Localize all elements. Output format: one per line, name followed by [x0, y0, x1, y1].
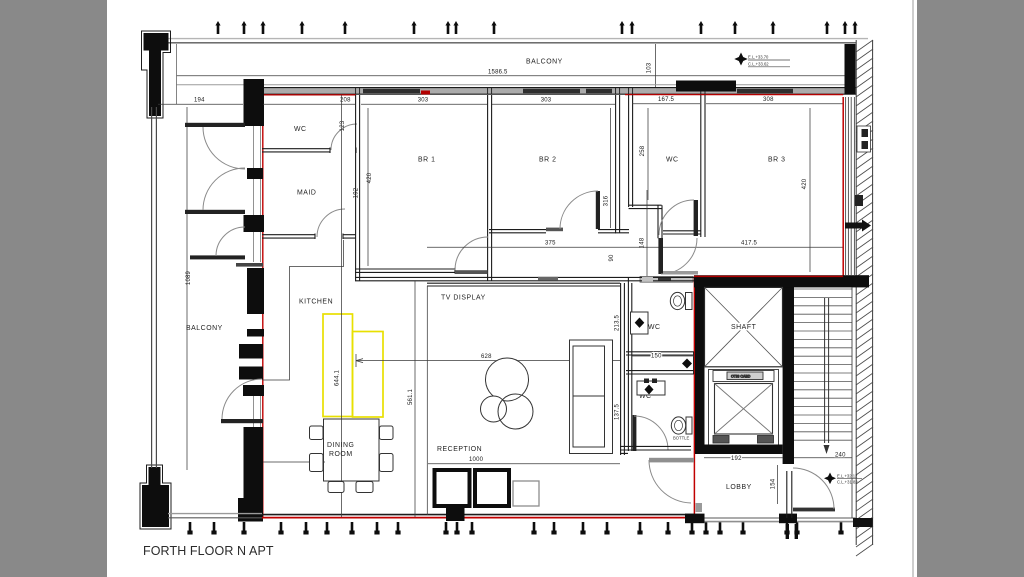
- svg-text:154: 154: [771, 478, 777, 489]
- svg-text:KITCHEN: KITCHEN: [299, 299, 333, 306]
- svg-text:417.5: 417.5: [741, 241, 757, 247]
- svg-text:DINING: DINING: [327, 442, 354, 449]
- svg-text:420: 420: [802, 178, 808, 189]
- svg-text:644.1: 644.1: [335, 370, 341, 386]
- svg-text:LOBBY: LOBBY: [726, 484, 752, 491]
- svg-text:150: 150: [651, 354, 662, 360]
- svg-text:561.1: 561.1: [408, 389, 414, 405]
- svg-text:148: 148: [640, 237, 646, 248]
- svg-text:90: 90: [609, 254, 615, 262]
- svg-text:RECEPTION: RECEPTION: [437, 446, 482, 453]
- svg-text:167.5: 167.5: [658, 97, 674, 103]
- svg-text:240: 240: [835, 453, 846, 459]
- svg-text:303: 303: [541, 98, 552, 104]
- svg-text:192: 192: [354, 187, 360, 198]
- svg-text:WC: WC: [648, 324, 661, 331]
- svg-text:1000: 1000: [469, 457, 484, 463]
- svg-text:1089: 1089: [186, 270, 192, 285]
- svg-text:103: 103: [647, 62, 653, 73]
- svg-text:BR 3: BR 3: [768, 157, 786, 164]
- svg-text:BALCONY: BALCONY: [186, 325, 223, 332]
- svg-text:TV DISPLAY: TV DISPLAY: [441, 295, 486, 302]
- svg-text:137.5: 137.5: [615, 404, 621, 420]
- svg-text:258: 258: [640, 145, 646, 156]
- svg-text:628: 628: [481, 354, 492, 360]
- svg-text:375: 375: [545, 241, 556, 247]
- svg-text:123: 123: [340, 120, 346, 131]
- svg-text:192: 192: [731, 456, 742, 462]
- svg-text:OTIS CABD: OTIS CABD: [731, 375, 751, 379]
- svg-text:BALCONY: BALCONY: [526, 59, 563, 66]
- svg-text:WC: WC: [666, 157, 679, 164]
- svg-text:316: 316: [604, 195, 610, 206]
- svg-text:213.5: 213.5: [615, 315, 621, 331]
- svg-text:FORTH FLOOR N APT: FORTH FLOOR N APT: [143, 544, 274, 558]
- svg-text:420: 420: [367, 172, 373, 183]
- svg-text:E.L.+33.70: E.L.+33.70: [748, 55, 769, 60]
- svg-text:E.L.+32.12: E.L.+32.12: [837, 474, 858, 479]
- svg-text:WC: WC: [294, 126, 307, 133]
- svg-text:MAID: MAID: [297, 190, 316, 197]
- svg-text:SHAFT: SHAFT: [731, 324, 757, 331]
- svg-text:C.L.+33.62: C.L.+33.62: [748, 62, 769, 67]
- svg-text:308: 308: [763, 97, 774, 103]
- svg-text:BOTTLE: BOTTLE: [673, 436, 689, 441]
- svg-text:1586.5: 1586.5: [488, 70, 508, 76]
- svg-text:303: 303: [418, 98, 429, 104]
- svg-text:BR 2: BR 2: [539, 157, 557, 164]
- svg-text:BR 1: BR 1: [418, 157, 436, 164]
- svg-text:ROOM: ROOM: [329, 451, 353, 458]
- svg-text:194: 194: [194, 98, 205, 104]
- svg-text:C.L.+31.82: C.L.+31.82: [837, 480, 858, 485]
